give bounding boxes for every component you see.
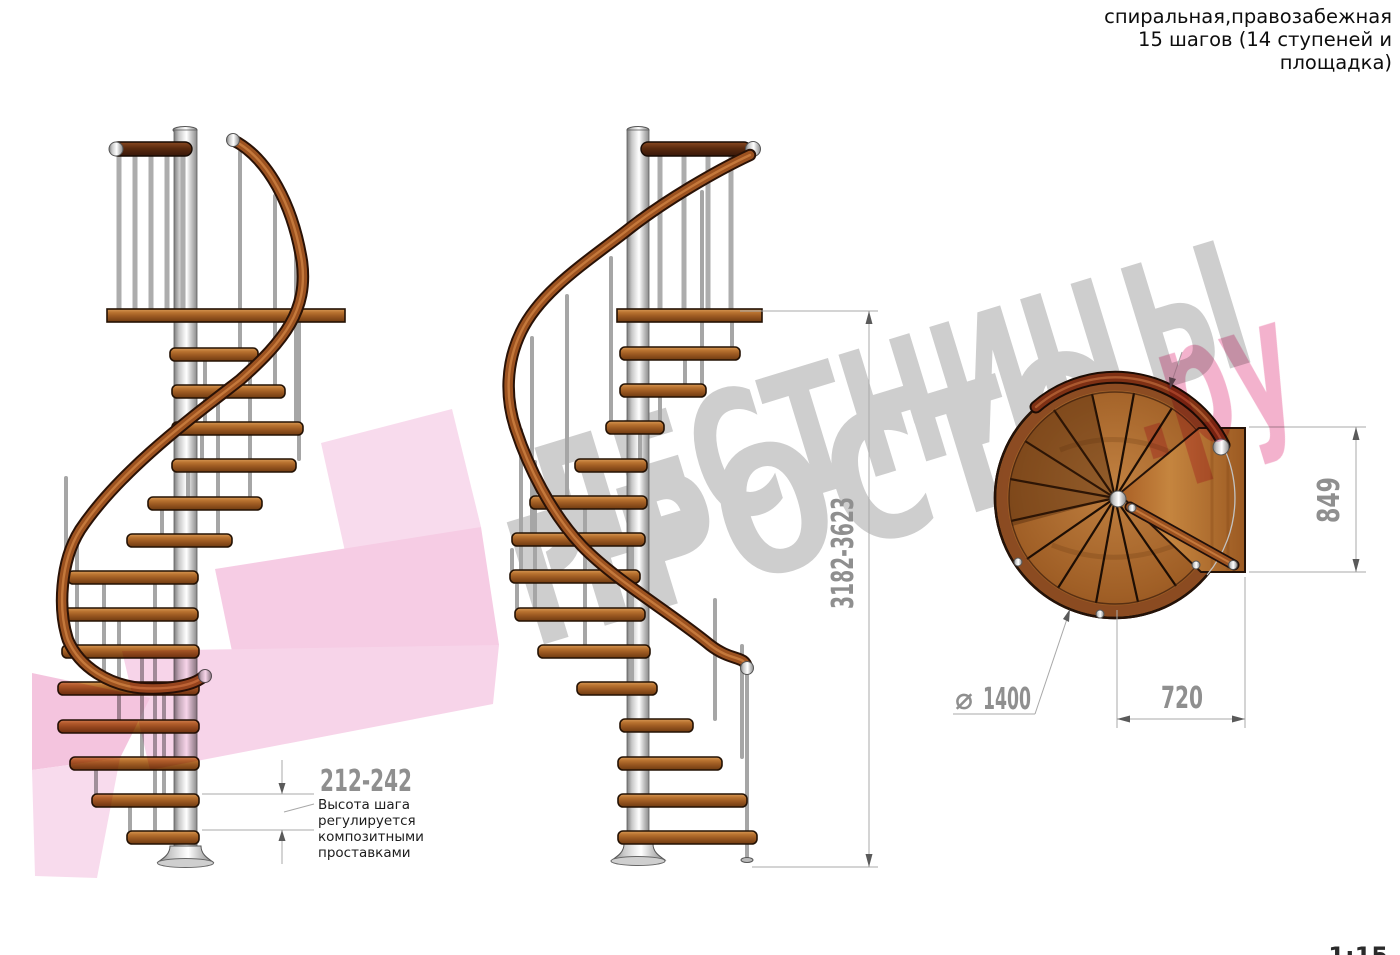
step-note-line: проставками: [318, 845, 411, 861]
step-height-value: 212-242: [320, 764, 412, 799]
pole-base-plate: [158, 859, 214, 868]
dimension-step-height: 212-242 Высота шага регулируется компози…: [202, 760, 424, 864]
diameter-value: 1400: [983, 682, 1031, 717]
total-height-value: 3182-3623: [826, 497, 861, 609]
drawing-title: спиральная,правозабежная 15 шагов (14 ст…: [1104, 6, 1392, 74]
step: [618, 794, 747, 807]
step: [575, 459, 647, 472]
step: [618, 831, 757, 844]
baluster-foot: [741, 858, 753, 863]
step: [620, 384, 706, 397]
title-line-1: спиральная,правозабежная: [1104, 6, 1392, 29]
step: [68, 571, 198, 584]
step: [515, 608, 645, 621]
platform: [107, 309, 345, 322]
step: [62, 608, 198, 621]
technical-drawing: ЛЕСТНИЦЫ ПРОСТО: [0, 0, 1400, 955]
pole-base-plate: [611, 857, 665, 866]
center-pole-top: [1110, 491, 1126, 507]
platform-length-value: 849: [1312, 477, 1347, 523]
step: [127, 534, 232, 547]
step: [172, 459, 296, 472]
platform-width-value: 720: [1161, 681, 1203, 716]
step: [606, 421, 664, 434]
handrail-cap: [109, 142, 123, 156]
platform-handrail: [641, 142, 751, 156]
step: [170, 348, 258, 361]
title-line-3: площадка): [1104, 52, 1392, 75]
center-pole: [627, 130, 649, 852]
step: [618, 757, 722, 770]
step: [620, 719, 693, 732]
title-line-2: 15 шагов (14 ступеней и: [1104, 29, 1392, 52]
dimension-diameter: ⌀ 1400: [953, 609, 1070, 717]
drawing-canvas: ЛЕСТНИЦЫ ПРОСТО: [0, 0, 1400, 955]
step-note-line: регулируется: [318, 813, 416, 829]
diameter-symbol: ⌀: [955, 682, 973, 717]
scale-label: 1:15: [1328, 942, 1388, 955]
watermark-arrow-facet: [32, 758, 120, 878]
step: [127, 831, 199, 844]
step-note-line: Высота шага: [318, 797, 410, 813]
step: [577, 682, 657, 695]
step: [148, 497, 262, 510]
step: [620, 347, 740, 360]
step-note-line: композитными: [318, 829, 424, 845]
watermark-arrow-facet: [122, 645, 499, 770]
step: [538, 645, 650, 658]
